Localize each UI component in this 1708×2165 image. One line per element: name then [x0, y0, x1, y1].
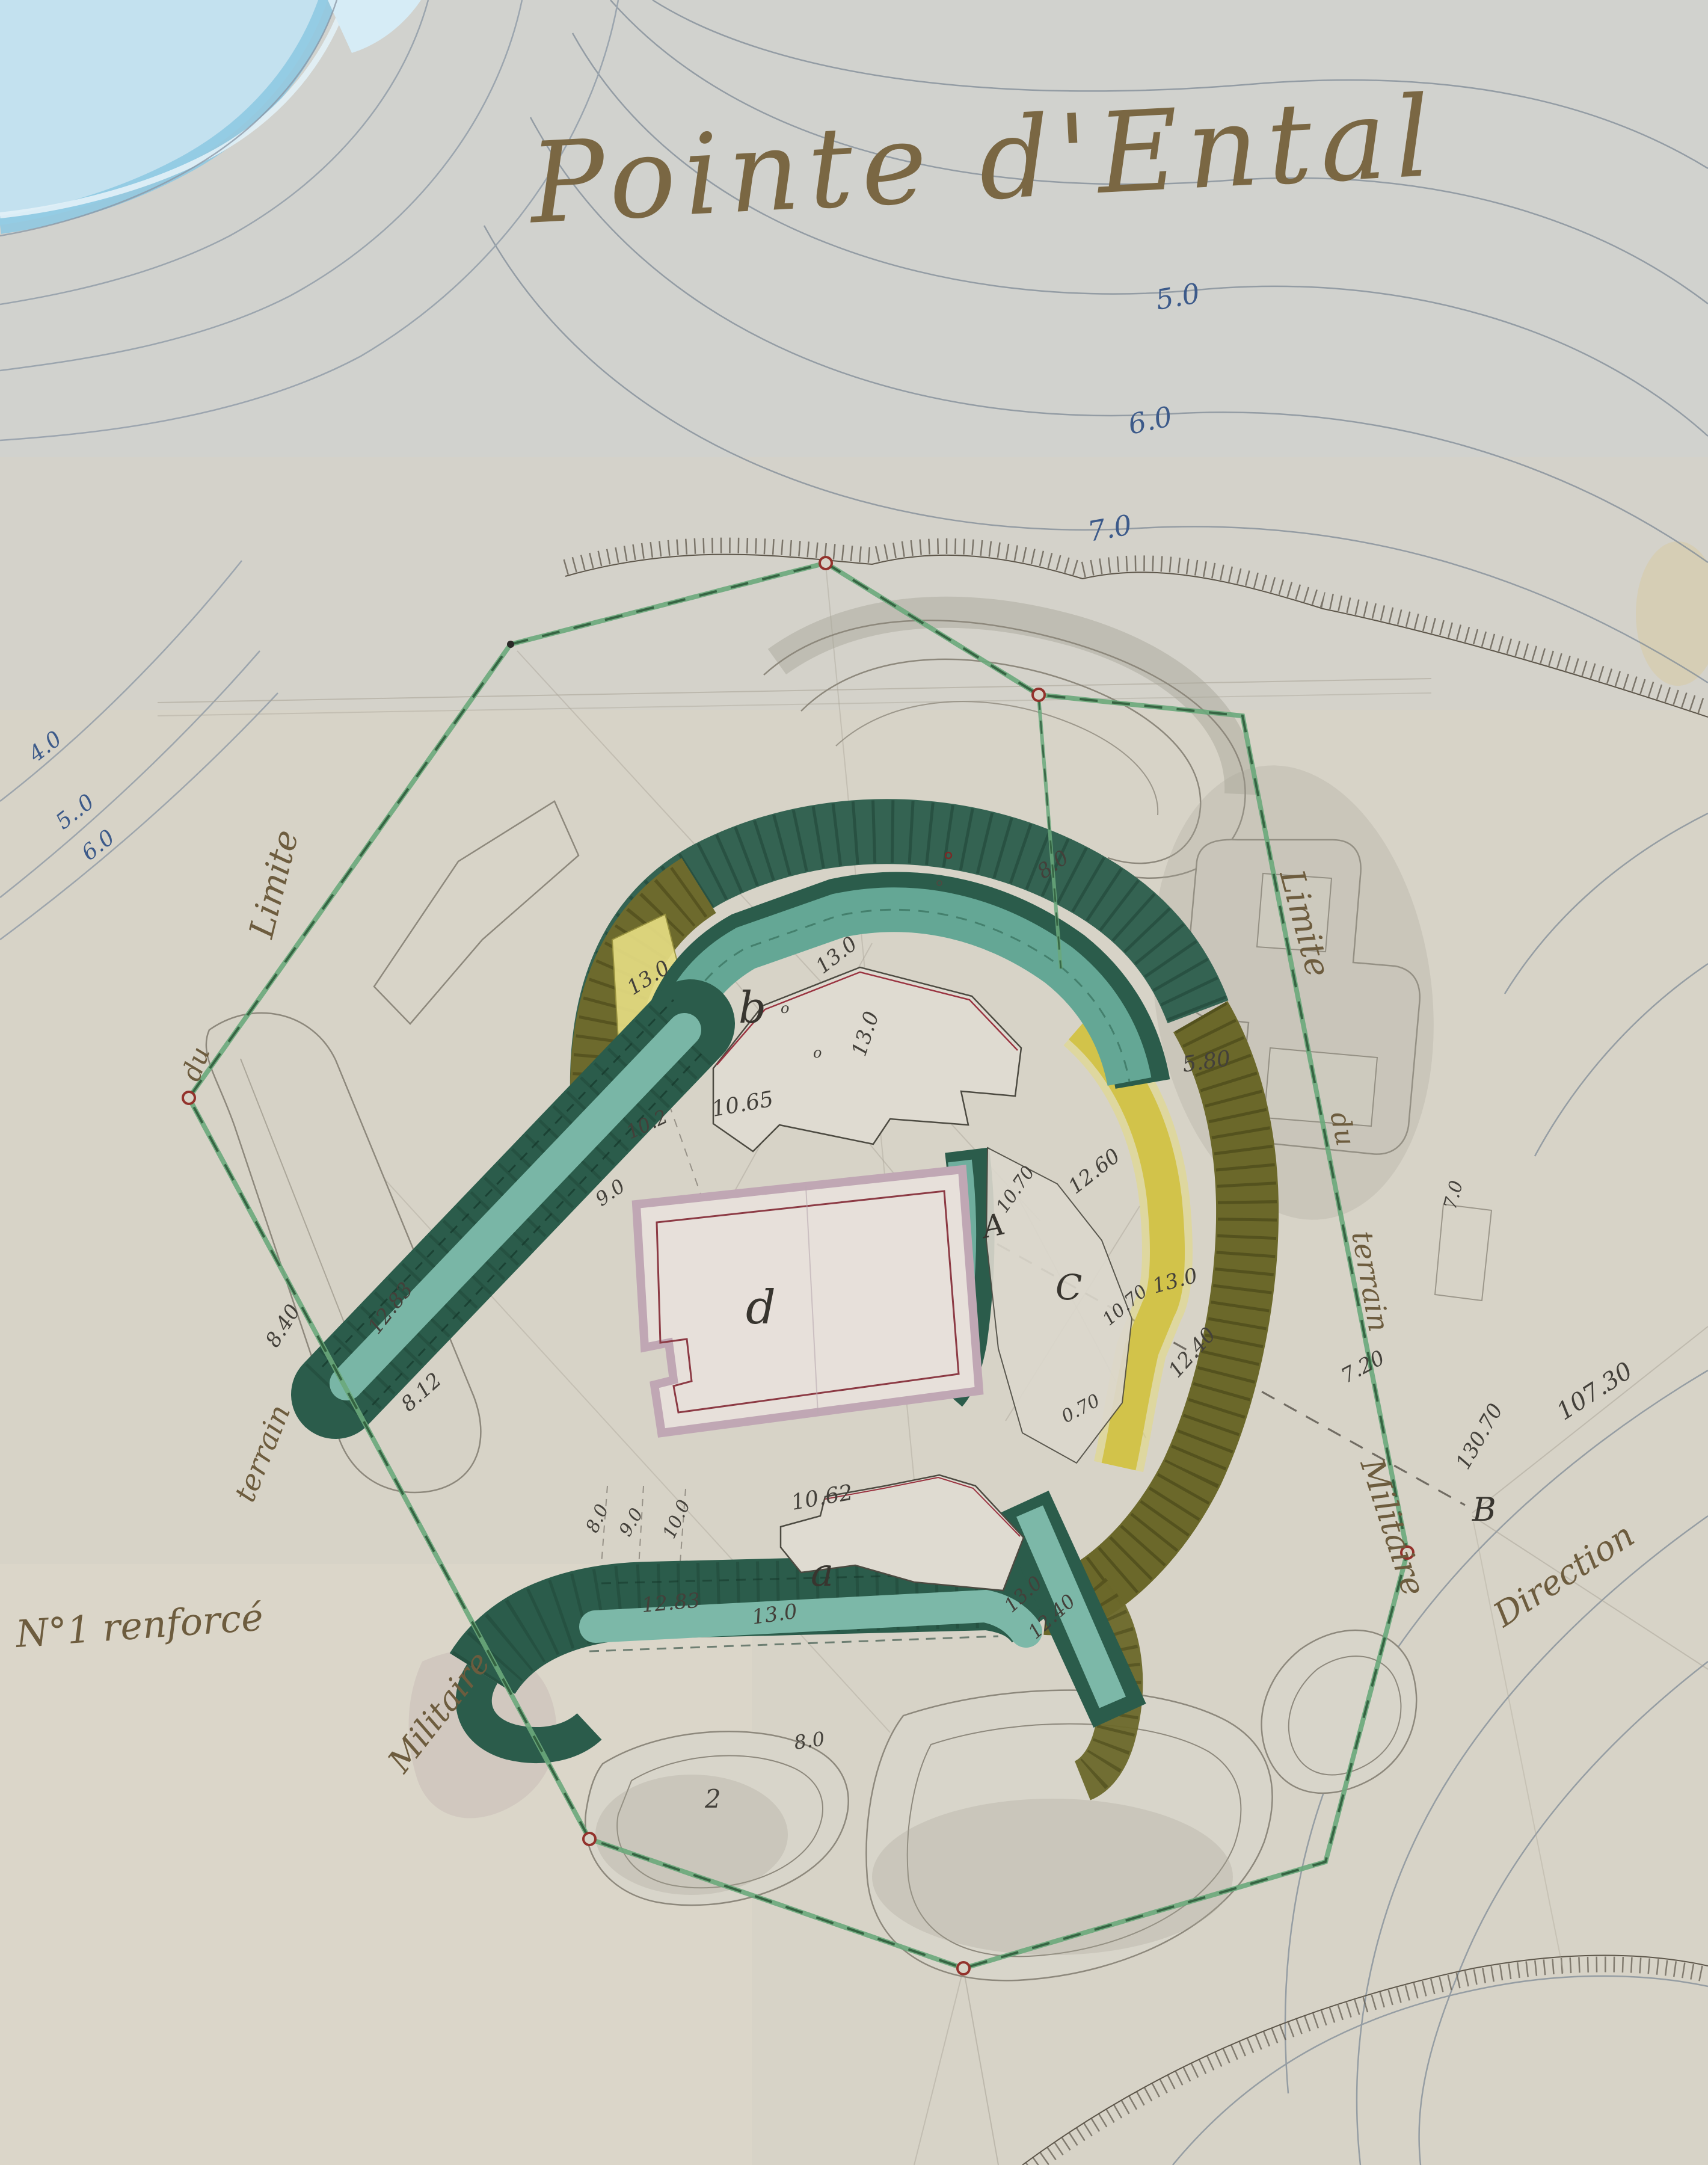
boundary-vertex-marker: [1033, 689, 1045, 701]
boundary-vertex-marker: [583, 1833, 595, 1845]
paper-tone-mid: [0, 457, 1708, 710]
wash-blob: [595, 1775, 788, 1895]
small-o-mark: o: [813, 1044, 822, 1061]
elevation-label: 8.0: [793, 1727, 826, 1754]
letter-label-b: b: [739, 982, 766, 1033]
boundary-vertex-dot: [507, 641, 514, 648]
elevation-label: 12.83: [640, 1589, 701, 1618]
small-o-mark: o: [781, 1000, 789, 1017]
letter-label-a: a: [811, 1551, 834, 1595]
squiggle-mark: 2: [704, 1784, 721, 1814]
scanned-map-page: Pointe d'Ental 5.0 6.0 7.0 4.0 5..0 6.0 …: [0, 0, 1708, 2165]
building-d: [636, 1169, 979, 1433]
letter-label-B: B: [1472, 1491, 1496, 1529]
wash-blob: [872, 1799, 1233, 1955]
map-canvas: Pointe d'Ental 5.0 6.0 7.0 4.0 5..0 6.0 …: [0, 0, 1708, 2165]
boundary-vertex-marker: [183, 1092, 195, 1104]
boundary-vertex-marker: [957, 1962, 969, 1974]
letter-label-C: C: [1055, 1267, 1082, 1308]
letter-label-d: d: [746, 1281, 776, 1335]
boundary-vertex-marker: [820, 557, 832, 569]
